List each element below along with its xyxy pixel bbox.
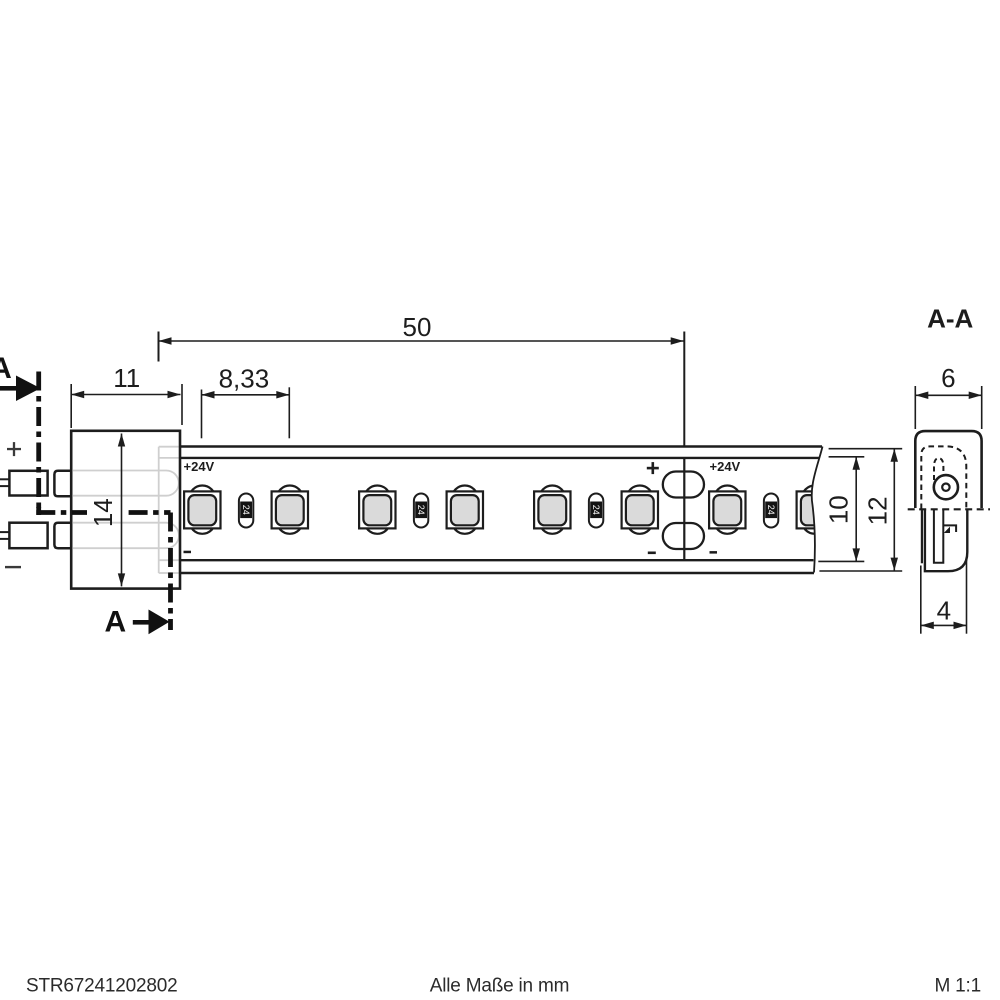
svg-text:11: 11	[113, 363, 140, 393]
svg-text:M 1:1: M 1:1	[934, 976, 981, 997]
svg-text:A-A: A-A	[927, 304, 973, 334]
svg-text:12: 12	[863, 496, 893, 525]
svg-text:50: 50	[403, 312, 432, 342]
svg-text:24: 24	[241, 505, 251, 515]
svg-text:24: 24	[591, 505, 601, 515]
svg-text:STR67241202802: STR67241202802	[26, 976, 177, 997]
svg-text:Alle Maße in mm: Alle Maße in mm	[430, 976, 570, 997]
svg-text:+24V: +24V	[710, 459, 741, 474]
svg-text:14: 14	[88, 498, 118, 527]
svg-text:+24V: +24V	[184, 459, 215, 474]
svg-text:6: 6	[941, 363, 955, 393]
svg-text:24: 24	[416, 505, 426, 515]
svg-text:A: A	[104, 606, 126, 639]
svg-text:10: 10	[824, 495, 854, 524]
svg-text:A: A	[0, 352, 12, 385]
svg-text:4: 4	[937, 596, 951, 626]
svg-text:8,33: 8,33	[219, 364, 270, 394]
svg-text:24: 24	[766, 505, 776, 515]
